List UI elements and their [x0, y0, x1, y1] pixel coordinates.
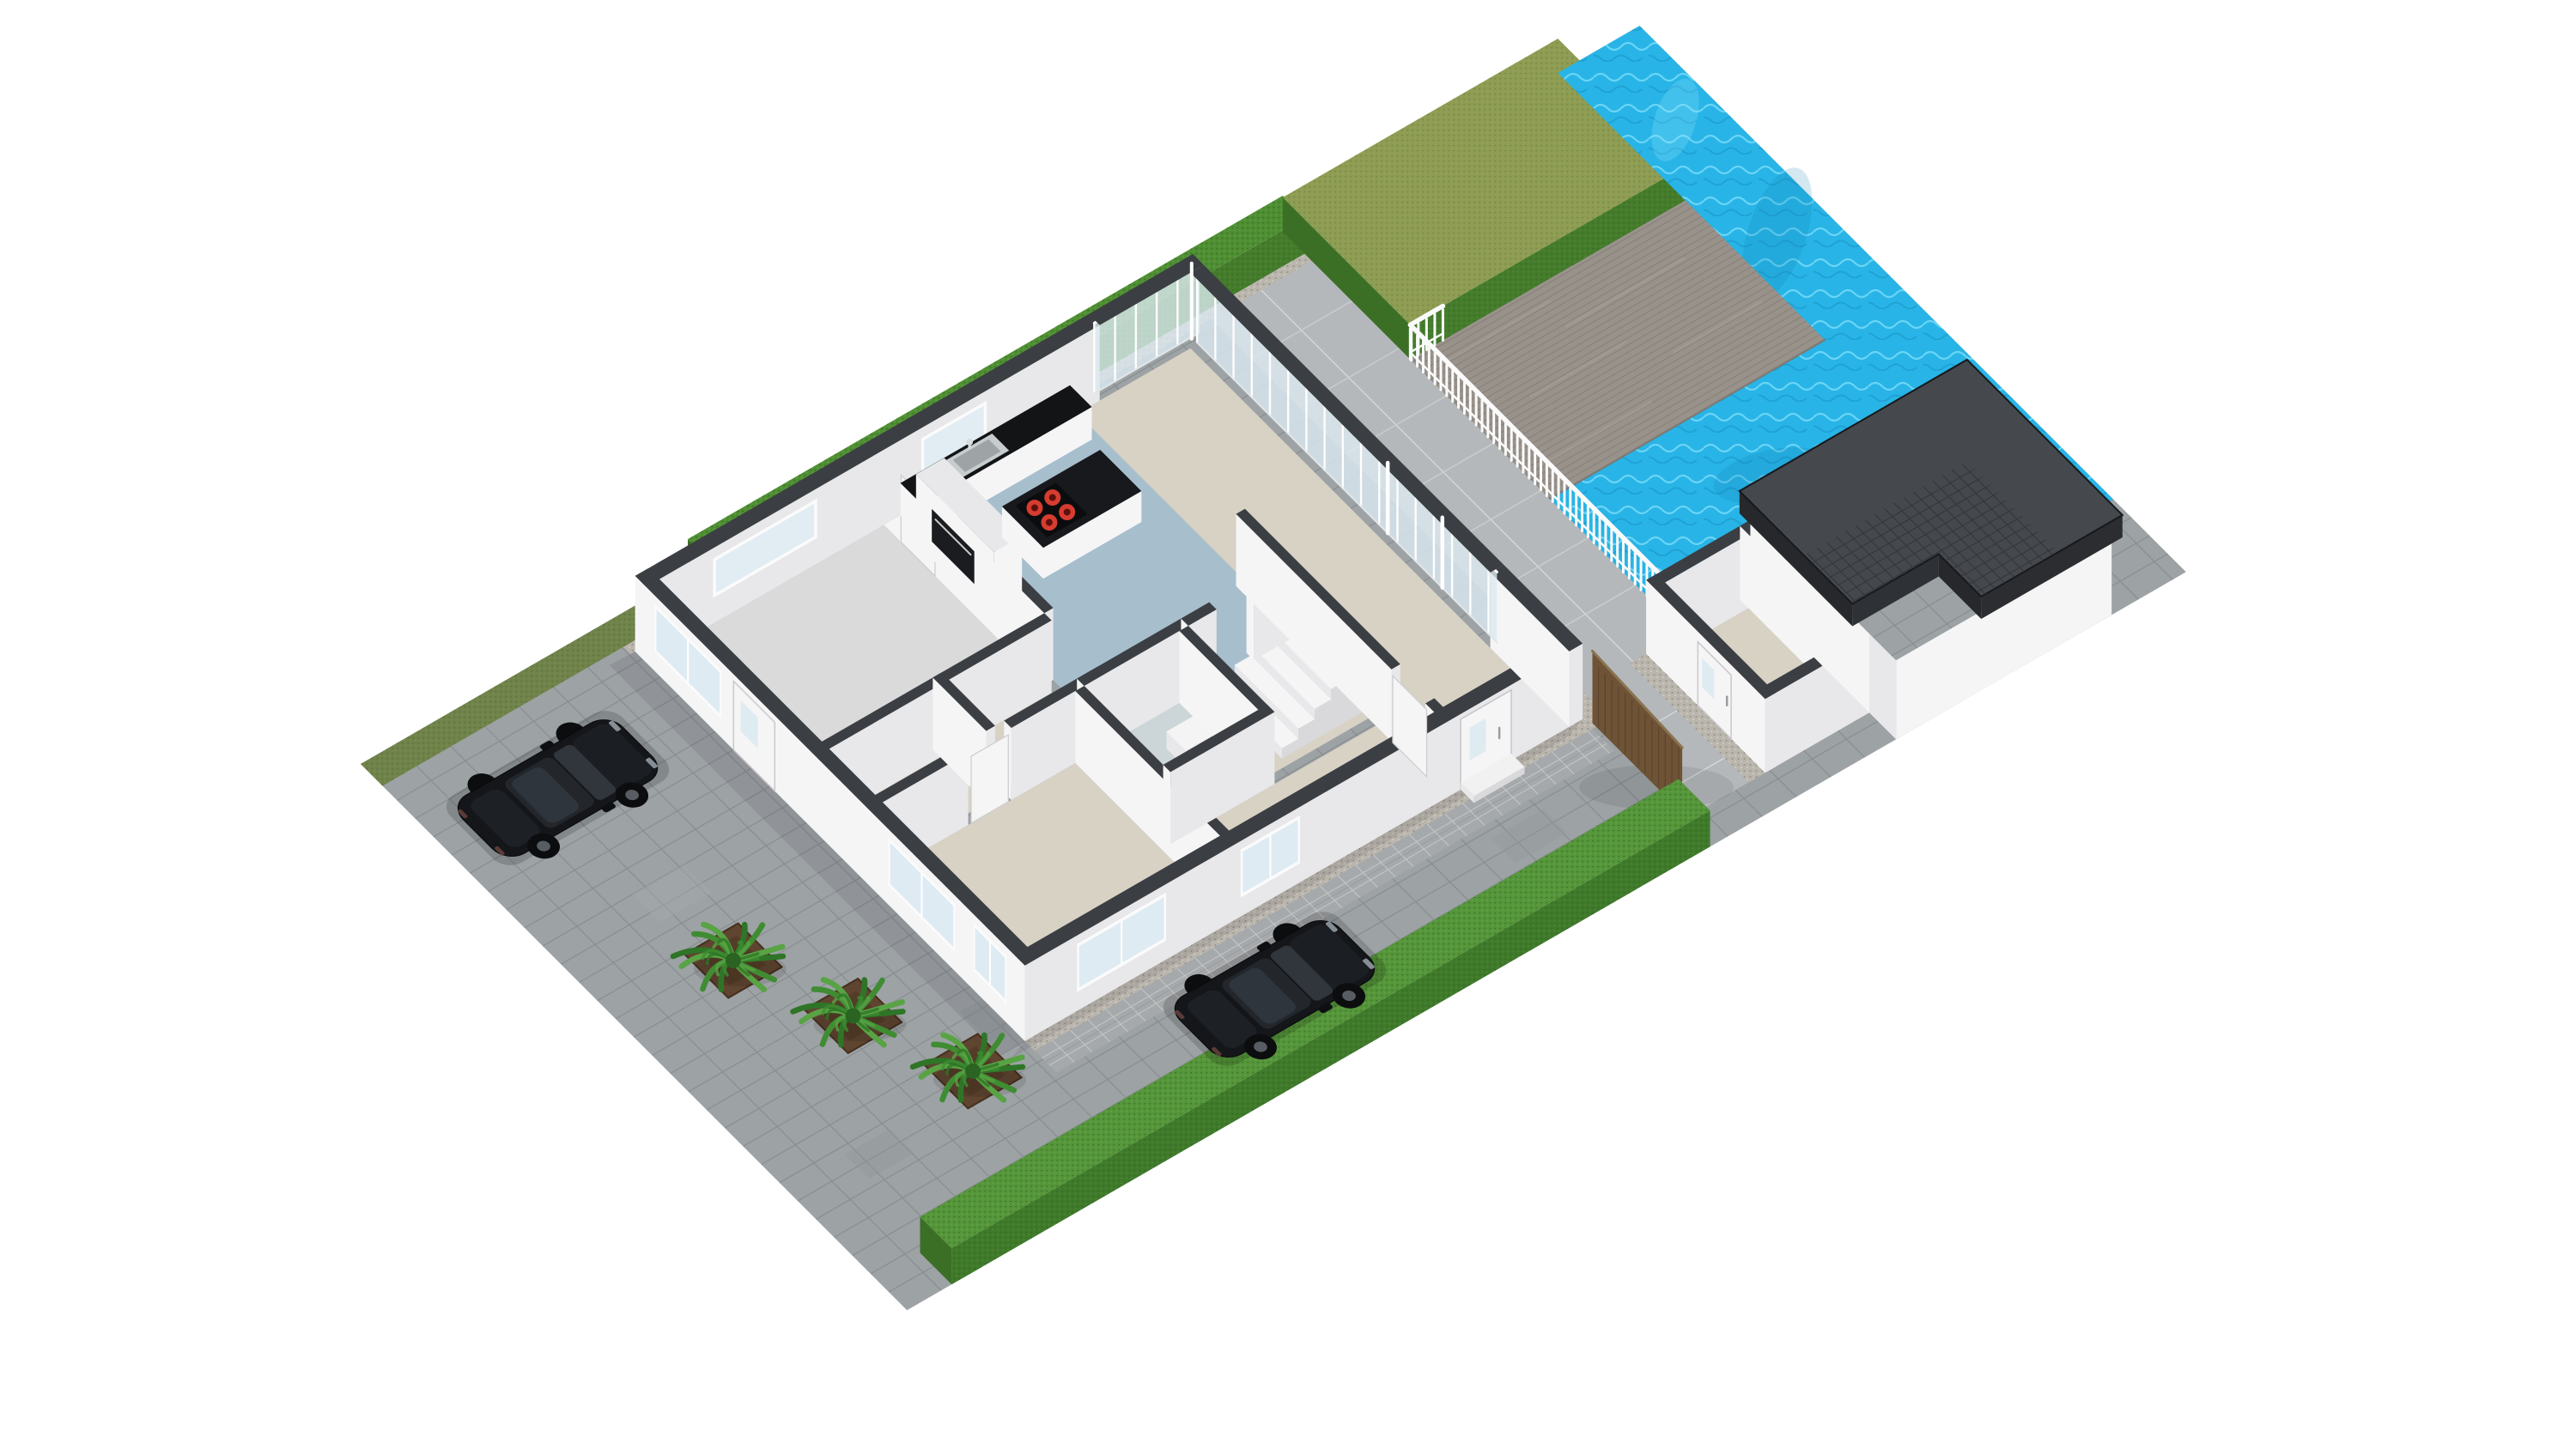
scene-svg — [0, 0, 2576, 1449]
floorplan-render — [0, 0, 2576, 1449]
